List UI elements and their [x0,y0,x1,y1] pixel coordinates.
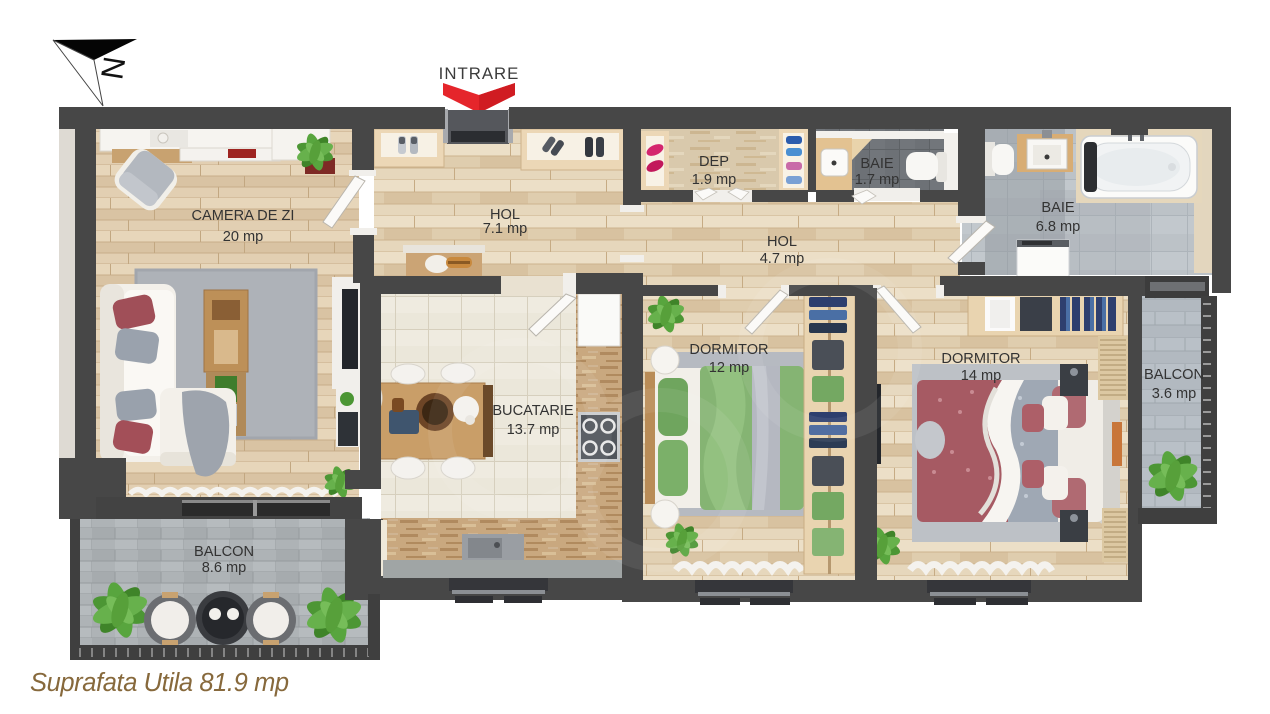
svg-text:12 mp: 12 mp [709,360,750,376]
svg-text:1.7 mp: 1.7 mp [855,172,900,188]
svg-text:6.8 mp: 6.8 mp [1036,219,1081,235]
svg-text:BUCATARIE: BUCATARIE [492,403,574,419]
svg-text:CAMERA DE ZI: CAMERA DE ZI [192,208,295,224]
svg-text:4.7 mp: 4.7 mp [760,251,805,267]
svg-text:BAIE: BAIE [1041,200,1075,216]
svg-text:DORMITOR: DORMITOR [689,342,768,358]
svg-text:DORMITOR: DORMITOR [941,351,1020,367]
svg-text:BALCON: BALCON [194,544,254,560]
svg-text:BALCON: BALCON [1144,367,1204,383]
svg-text:14 mp: 14 mp [961,368,1002,384]
svg-text:3.6 mp: 3.6 mp [1152,386,1197,402]
svg-text:20 mp: 20 mp [223,229,264,245]
svg-text:BAIE: BAIE [860,156,894,172]
svg-text:Suprafata Utila 81.9 mp: Suprafata Utila 81.9 mp [30,669,289,697]
svg-text:1.9 mp: 1.9 mp [692,172,737,188]
svg-text:DEP: DEP [699,154,729,170]
svg-text:HOL: HOL [767,234,797,250]
svg-text:INTRARE: INTRARE [439,64,520,83]
svg-text:8.6 mp: 8.6 mp [202,560,247,576]
svg-text:7.1 mp: 7.1 mp [483,221,528,237]
svg-text:13.7 mp: 13.7 mp [507,422,560,438]
